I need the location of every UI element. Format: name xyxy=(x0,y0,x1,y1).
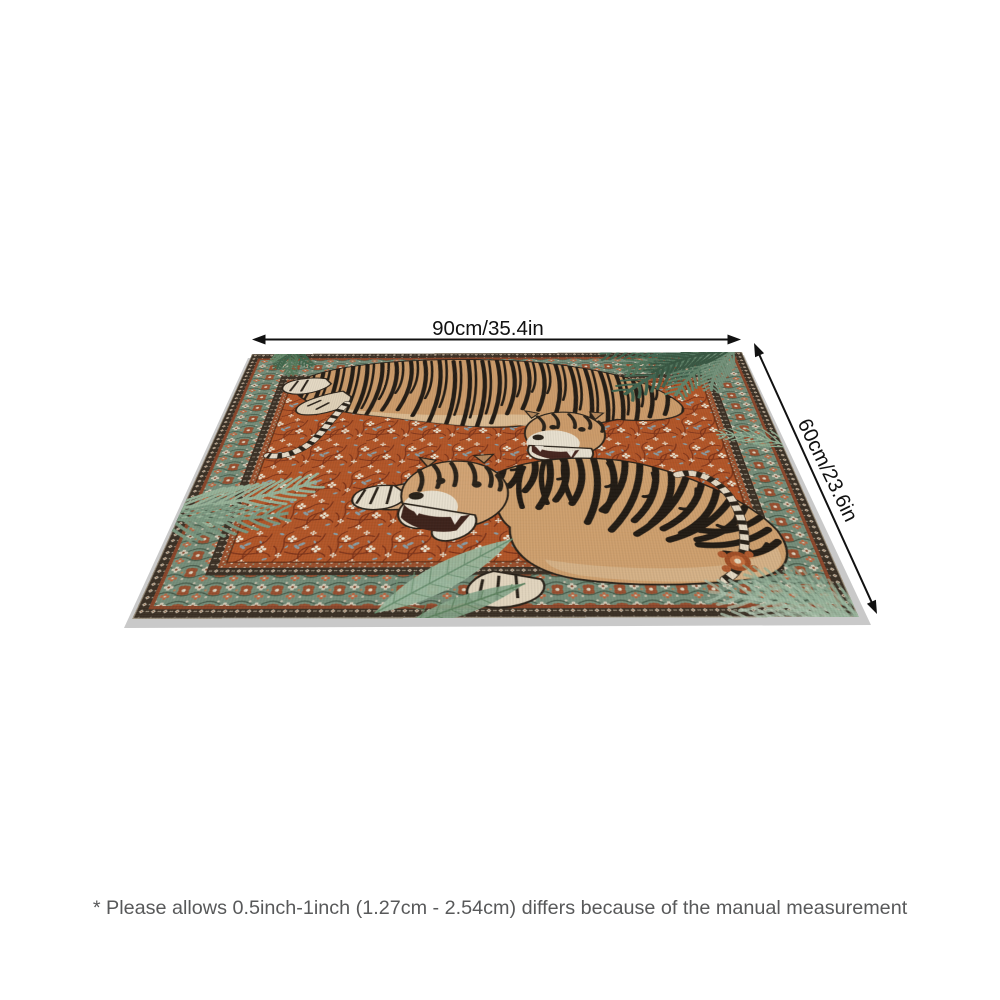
svg-text:90cm/35.4in: 90cm/35.4in xyxy=(432,317,544,340)
svg-text:60cm/23.6in: 60cm/23.6in xyxy=(793,415,863,525)
